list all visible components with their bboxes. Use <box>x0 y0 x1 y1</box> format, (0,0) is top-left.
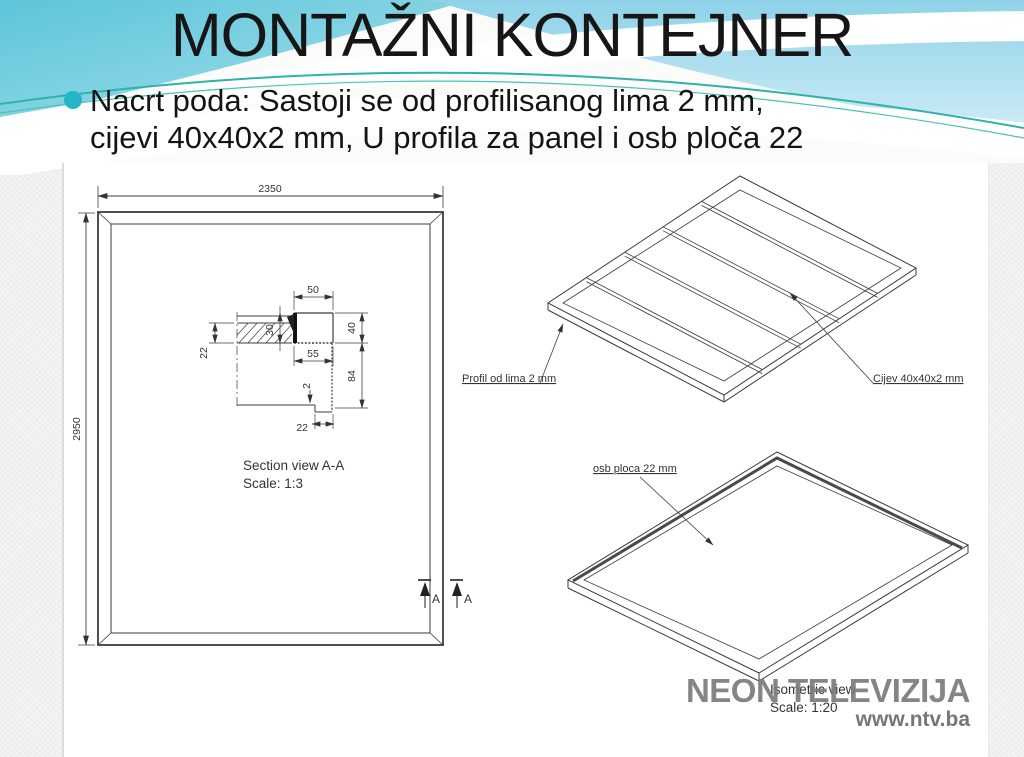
section-dim-top: 50 <box>307 284 319 296</box>
frame-isometric-drawing <box>540 176 916 402</box>
section-dim-tube-height: 40 <box>346 322 358 334</box>
frame-label-cijev: Cijev 40x40x2 mm <box>873 373 963 385</box>
technical-drawing-canvas: 2350 2950 A A <box>0 0 1024 757</box>
section-caption-scale: Scale: 1:3 <box>243 476 303 491</box>
plan-view-drawing <box>78 186 443 645</box>
watermark-station-name: NEON TELEVIZIJA <box>640 674 970 708</box>
section-dim-left: 22 <box>198 347 210 359</box>
section-marker-a1: A <box>432 592 440 606</box>
section-cut-arrows <box>418 580 463 608</box>
section-dim-lower-height: 84 <box>346 370 358 382</box>
section-dim-osb: 30 <box>264 324 276 336</box>
section-dim-mid: 55 <box>307 348 319 360</box>
frame-label-profil: Profil od lima 2 mm <box>462 373 556 385</box>
watermark: NEON TELEVIZIJA www.ntv.ba <box>640 674 970 732</box>
plan-width-dimension: 2350 <box>258 183 282 195</box>
section-dim-bottom: 22 <box>296 422 308 434</box>
panel-isometric-drawing <box>568 452 968 681</box>
panel-label-osb: osb ploca 22 mm <box>593 463 677 475</box>
plan-height-dimension: 2950 <box>71 417 83 441</box>
section-caption-title: Section view A-A <box>243 458 344 473</box>
section-marker-a2: A <box>464 592 472 606</box>
watermark-website-url: www.ntv.ba <box>640 708 970 732</box>
section-detail-drawing <box>209 291 368 429</box>
section-dim-sheet: 2 <box>301 383 313 389</box>
